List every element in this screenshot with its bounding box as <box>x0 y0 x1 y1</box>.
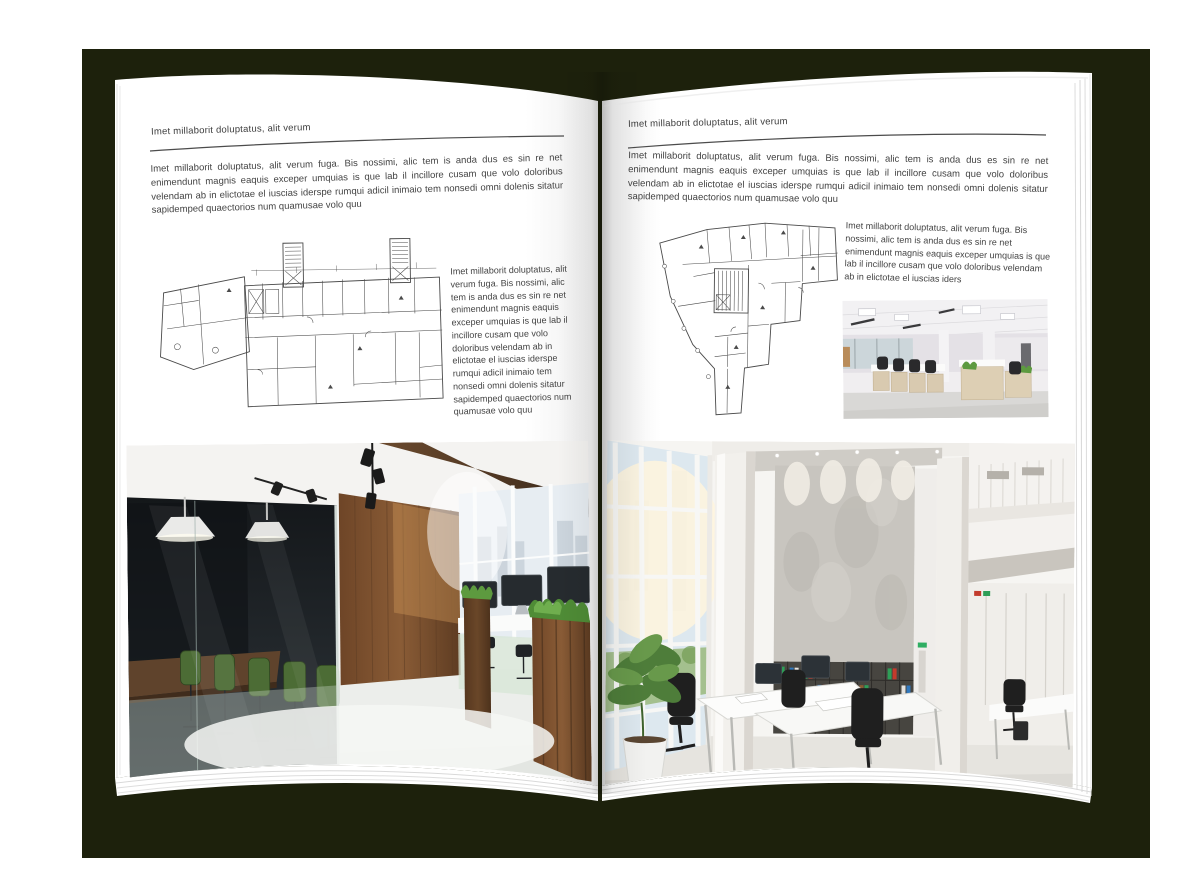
left-page-intro: Imet millaborit doluptatus, alit verum f… <box>150 151 563 218</box>
right-side-text: Imet millaborit doluptatus, alit verum f… <box>844 219 1052 288</box>
right-page-intro: Imet millaborit doluptatus, alit verum f… <box>628 149 1049 210</box>
left-office-photo <box>126 441 592 791</box>
right-floor-plan <box>647 216 841 425</box>
left-header-rule <box>148 134 568 154</box>
right-office-photo <box>605 440 1075 793</box>
small-office-photo <box>842 299 1048 419</box>
right-header-rule <box>626 130 1050 152</box>
left-side-text: Imet millaborit doluptatus, alit verum f… <box>450 263 575 419</box>
left-floor-plan <box>156 227 447 414</box>
